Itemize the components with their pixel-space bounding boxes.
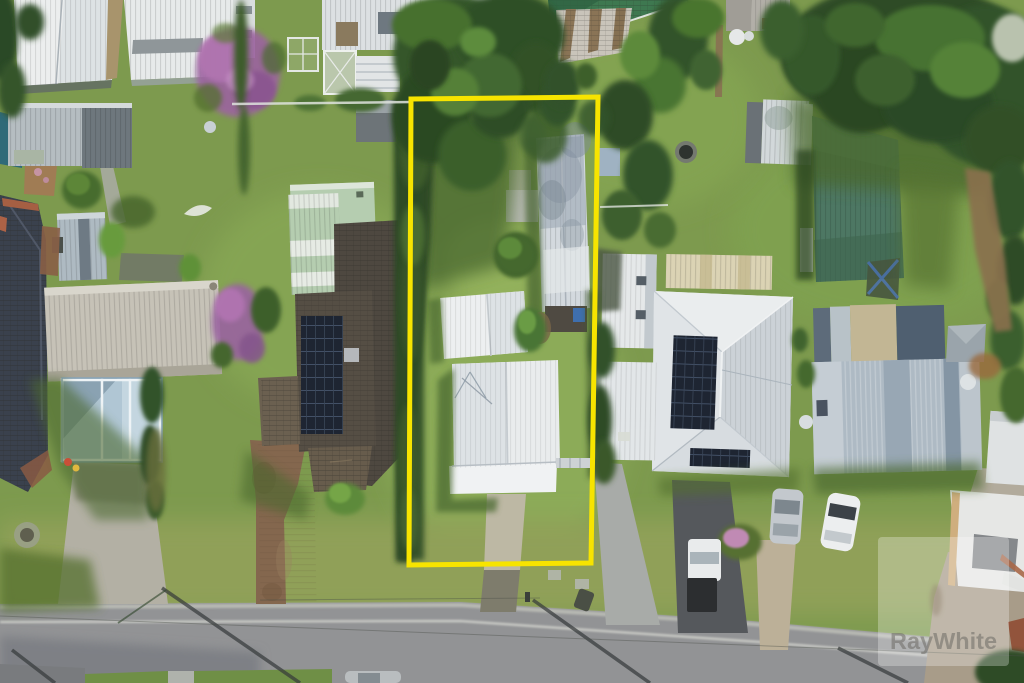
svg-text:RayWhite: RayWhite [890, 628, 997, 654]
